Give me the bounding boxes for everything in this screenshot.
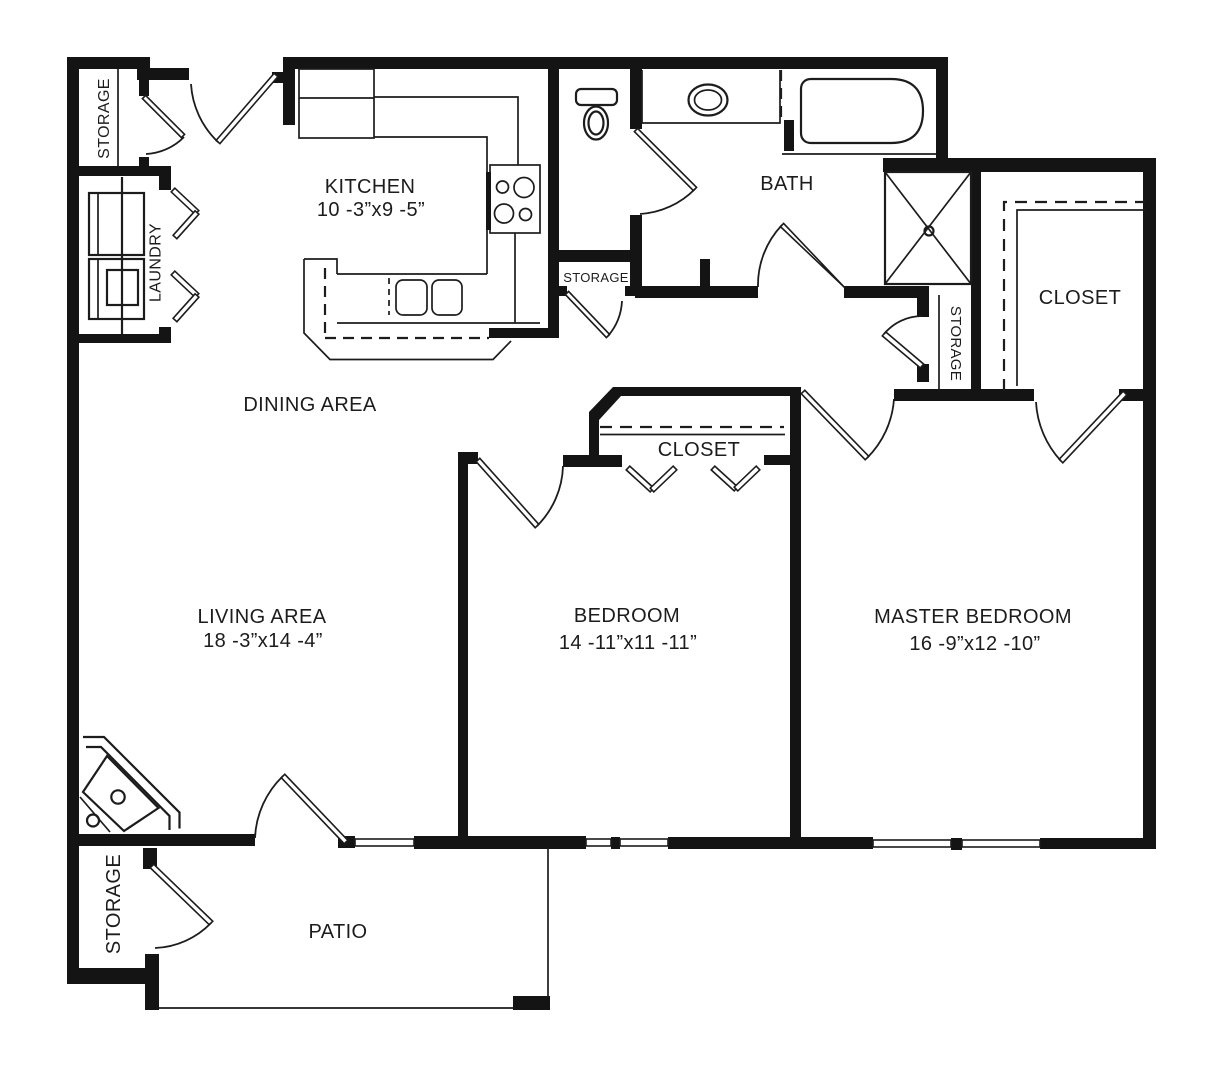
svg-text:MASTER BEDROOM: MASTER BEDROOM <box>874 606 1072 628</box>
svg-text:PATIO: PATIO <box>308 921 367 943</box>
svg-text:16 -9”x12 -10”: 16 -9”x12 -10” <box>909 633 1040 655</box>
svg-text:BEDROOM: BEDROOM <box>574 605 680 627</box>
svg-text:LIVING AREA: LIVING AREA <box>198 606 327 628</box>
svg-text:14 -11”x11 -11”: 14 -11”x11 -11” <box>559 632 697 654</box>
svg-text:BATH: BATH <box>760 173 813 195</box>
svg-text:DINING AREA: DINING AREA <box>243 394 377 416</box>
svg-text:STORAGE: STORAGE <box>96 78 113 159</box>
svg-text:CLOSET: CLOSET <box>658 439 740 461</box>
svg-text:KITCHEN: KITCHEN <box>325 176 416 198</box>
svg-text:STORAGE: STORAGE <box>947 306 964 381</box>
svg-text:18 -3”x14 -4”: 18 -3”x14 -4” <box>203 630 323 652</box>
svg-text:STORAGE: STORAGE <box>563 270 628 285</box>
svg-text:CLOSET: CLOSET <box>1039 287 1121 309</box>
svg-text:LAUNDRY: LAUNDRY <box>147 223 164 302</box>
svg-text:STORAGE: STORAGE <box>103 854 125 954</box>
svg-text:10 -3”x9 -5”: 10 -3”x9 -5” <box>317 199 425 221</box>
